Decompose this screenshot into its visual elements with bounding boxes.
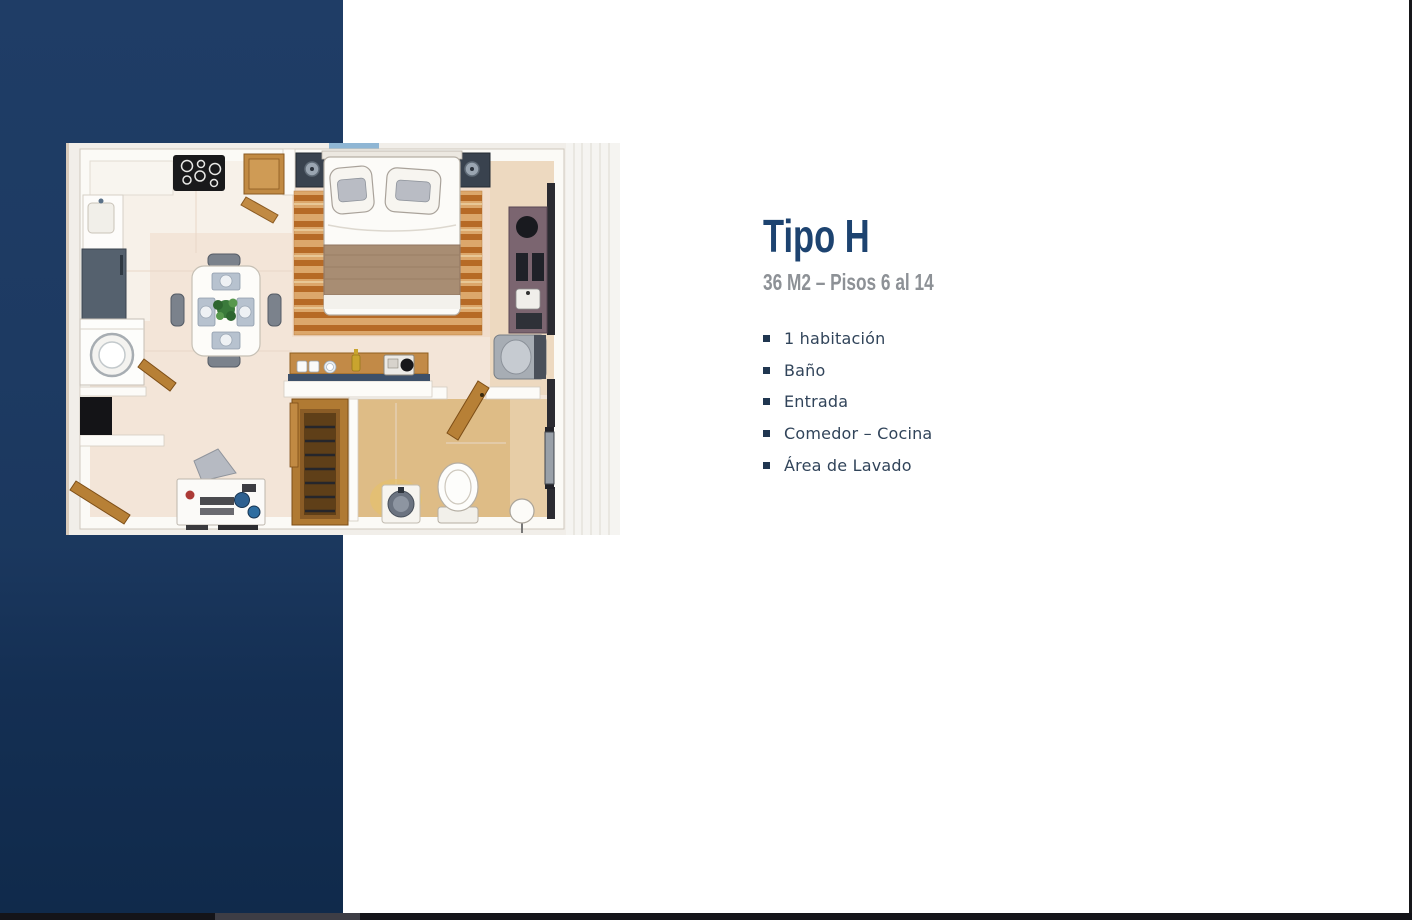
chair xyxy=(268,294,281,326)
utility-sink xyxy=(494,335,546,379)
floorplan-figure xyxy=(66,143,620,535)
toilet xyxy=(438,463,478,523)
bullet-square-icon xyxy=(763,462,770,469)
bullet-square-icon xyxy=(763,430,770,437)
bullet-square-icon xyxy=(763,398,770,405)
feature-list: 1 habitación Baño Entrada Comedor – Coci… xyxy=(763,323,991,481)
refrigerator xyxy=(82,249,126,319)
feature-label: Comedor – Cocina xyxy=(784,424,932,443)
floorplan-image xyxy=(66,143,620,535)
blanket xyxy=(324,245,460,295)
entry-door xyxy=(545,432,554,484)
bar-counter xyxy=(288,349,430,381)
chair xyxy=(171,294,184,326)
feature-item: 1 habitación xyxy=(763,323,991,355)
closet xyxy=(290,399,348,525)
bullet-square-icon xyxy=(763,335,770,342)
unit-details-panel: Tipo H 36 M2 – Pisos 6 al 14 1 habitació… xyxy=(763,213,991,481)
feature-item: Baño xyxy=(763,355,991,387)
feature-label: Baño xyxy=(784,361,826,380)
bottle xyxy=(352,355,360,371)
feature-label: Área de Lavado xyxy=(784,456,912,475)
feature-item: Comedor – Cocina xyxy=(763,418,991,450)
bullet-square-icon xyxy=(763,367,770,374)
unit-title: Tipo H xyxy=(763,213,934,259)
bedroom-area xyxy=(294,151,490,335)
horizontal-scrollbar-thumb[interactable] xyxy=(215,913,360,920)
horizontal-scrollbar[interactable] xyxy=(0,913,1412,920)
bathroom-sink xyxy=(382,485,420,523)
closet-opening xyxy=(80,397,112,435)
plant xyxy=(213,299,238,322)
feature-label: Entrada xyxy=(784,392,848,411)
bed xyxy=(322,151,462,315)
unit-subtitle: 36 M2 – Pisos 6 al 14 xyxy=(763,271,934,294)
feature-item: Entrada xyxy=(763,386,991,418)
feature-item: Área de Lavado xyxy=(763,449,991,481)
chair xyxy=(208,254,240,267)
feature-label: 1 habitación xyxy=(784,329,885,348)
page: Tipo H 36 M2 – Pisos 6 al 14 1 habitació… xyxy=(0,0,1412,920)
